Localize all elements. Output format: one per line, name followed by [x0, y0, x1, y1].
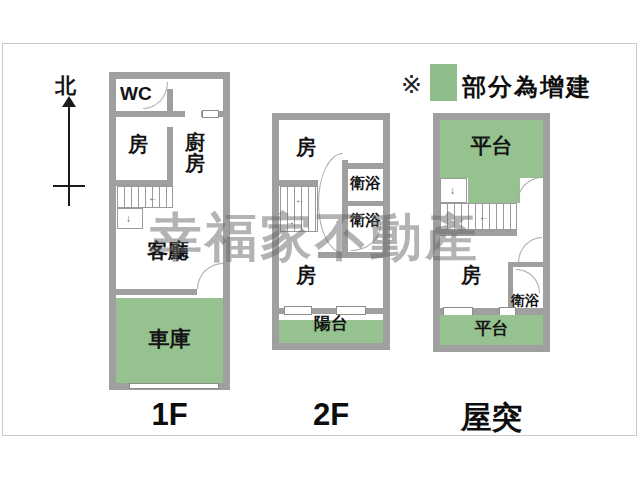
wall — [116, 289, 197, 295]
wall — [272, 343, 390, 350]
floor-caption-1f: 1F — [109, 397, 230, 433]
wall — [167, 127, 173, 180]
wall — [348, 163, 383, 169]
wall — [433, 113, 550, 120]
floor-caption-rooftop: 屋突 — [433, 397, 550, 439]
wall — [433, 345, 550, 352]
stair-direction-icon: ↓ — [126, 214, 131, 224]
stair-direction-icon: ← — [148, 193, 158, 203]
door-arc — [516, 269, 540, 293]
wall — [272, 113, 390, 120]
room-label-bathroom-upper: 衛浴 — [350, 175, 380, 191]
legend-green-swatch — [430, 64, 457, 101]
stair-landing: ↓ — [440, 178, 467, 203]
room-label-garage: 車庫 — [116, 328, 223, 350]
north-arrow-line — [68, 104, 70, 206]
room-label-bedroom: 房 — [128, 134, 148, 155]
door-arc — [517, 177, 542, 203]
terrace-top-addition-area — [468, 178, 520, 203]
room-label-bedroom-front: 房 — [296, 137, 316, 158]
wall — [167, 89, 173, 111]
north-label: 北 — [55, 75, 76, 97]
watermark-text: 幸福家不動產 — [150, 203, 480, 273]
door-arc — [518, 237, 542, 263]
stair-direction-icon: ↓ — [450, 186, 455, 196]
room-label-terrace-bottom: 平台 — [440, 320, 543, 338]
room-label-kitchen: 廚房 — [185, 132, 207, 174]
north-cross-tick — [53, 185, 85, 187]
door-opening — [185, 111, 201, 117]
garage-door — [129, 383, 219, 389]
wall — [543, 113, 550, 352]
wall — [109, 72, 230, 79]
room-label-balcony: 陽台 — [279, 315, 383, 333]
floorplan-image: { "compass": { "label": "北" }, "legend":… — [0, 0, 640, 480]
stair-landing: ↓ — [117, 208, 143, 229]
door-arc — [143, 82, 168, 109]
legend-marker: ※ — [401, 70, 422, 99]
window — [202, 110, 219, 118]
room-label-terrace-top: 平台 — [440, 135, 543, 157]
stair-direction-icon: ← — [479, 212, 489, 222]
wall — [508, 262, 543, 267]
window — [284, 306, 312, 315]
wall — [109, 72, 116, 390]
floor-caption-2f: 2F — [272, 397, 390, 433]
legend-label: 部分為增建 — [462, 71, 592, 103]
room-label-bathroom: 衛浴 — [511, 293, 539, 308]
